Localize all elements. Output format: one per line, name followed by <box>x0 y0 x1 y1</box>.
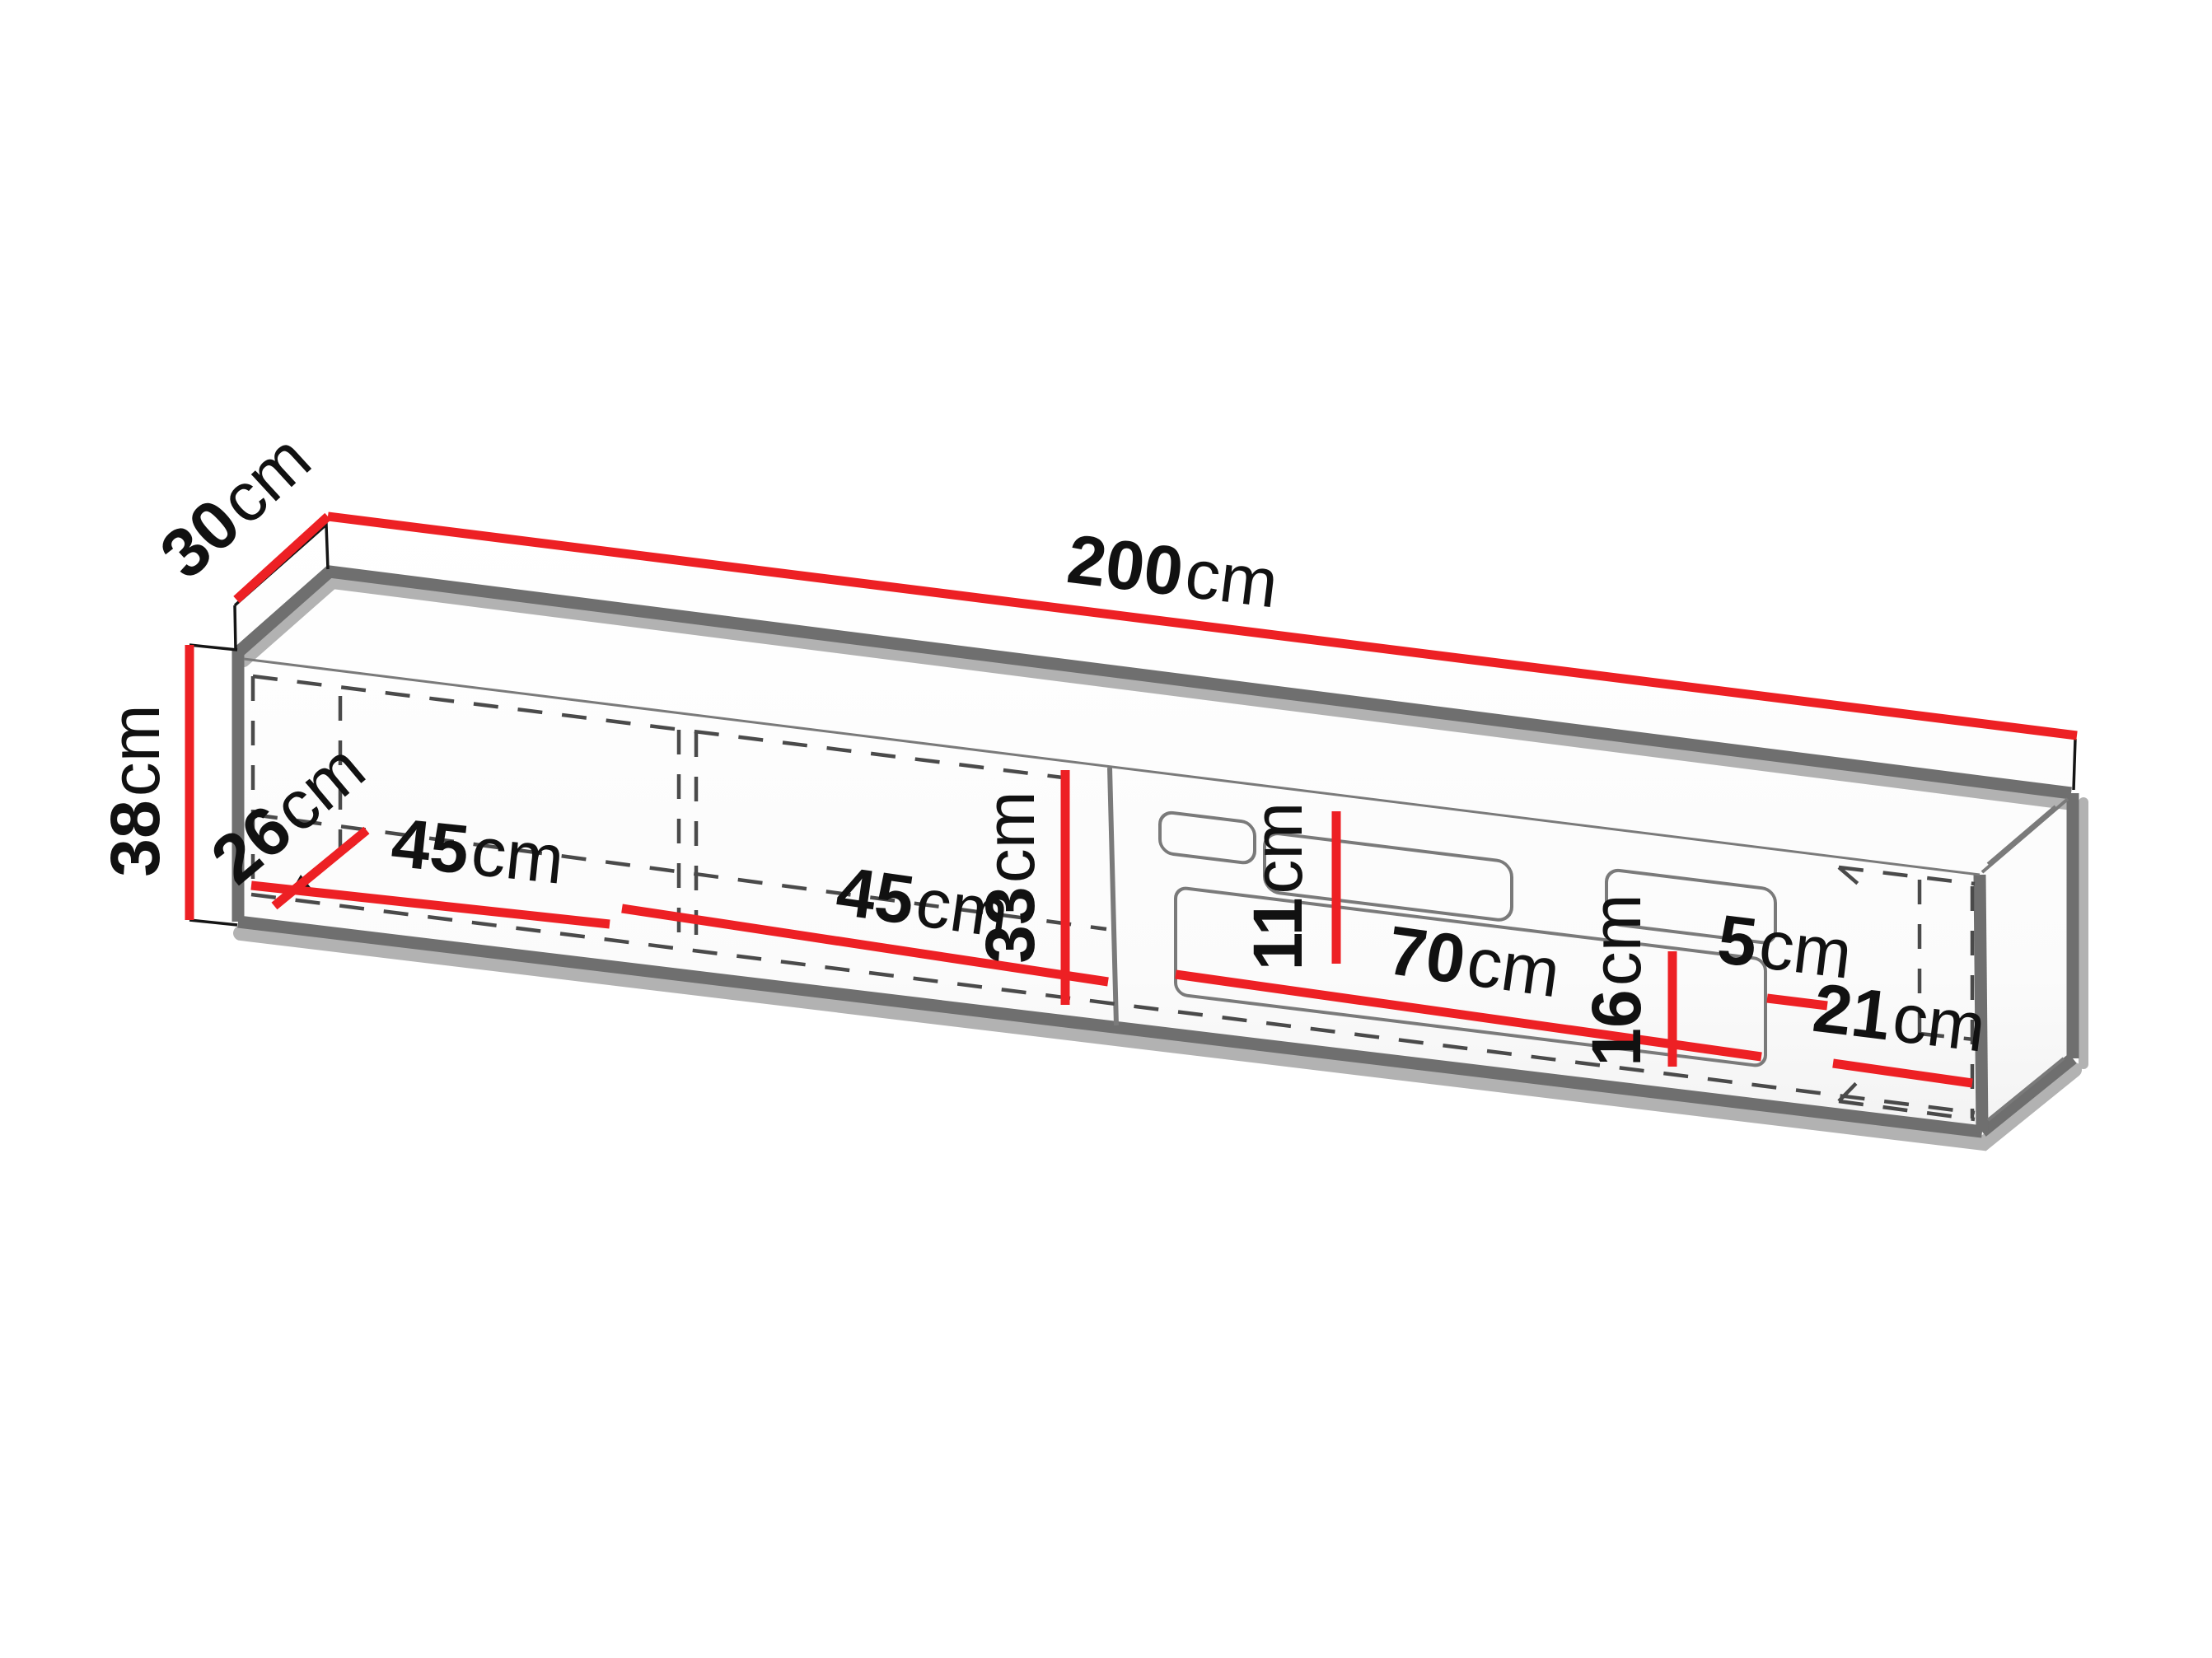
cabinet-dimension-diagram: 30cm 200cm 38cm 26cm 45cm 45cm 33cm 11cm… <box>0 0 2212 1658</box>
height-ext-top <box>189 645 237 650</box>
label-height-38: 38cm <box>96 704 174 876</box>
top-left-outline <box>235 605 236 650</box>
label-recess-height-16: 16cm <box>1578 894 1655 1066</box>
label-width-200: 200cm <box>1064 520 1283 623</box>
height-ext-bottom <box>189 920 237 925</box>
label-slot-height-11: 11cm <box>1239 802 1316 971</box>
diagram-page: 30cm 200cm 38cm 26cm 45cm 45cm 33cm 11cm… <box>0 0 2212 1658</box>
top-right-outline <box>2074 739 2075 790</box>
label-inner-height-33: 33cm <box>971 791 1049 963</box>
